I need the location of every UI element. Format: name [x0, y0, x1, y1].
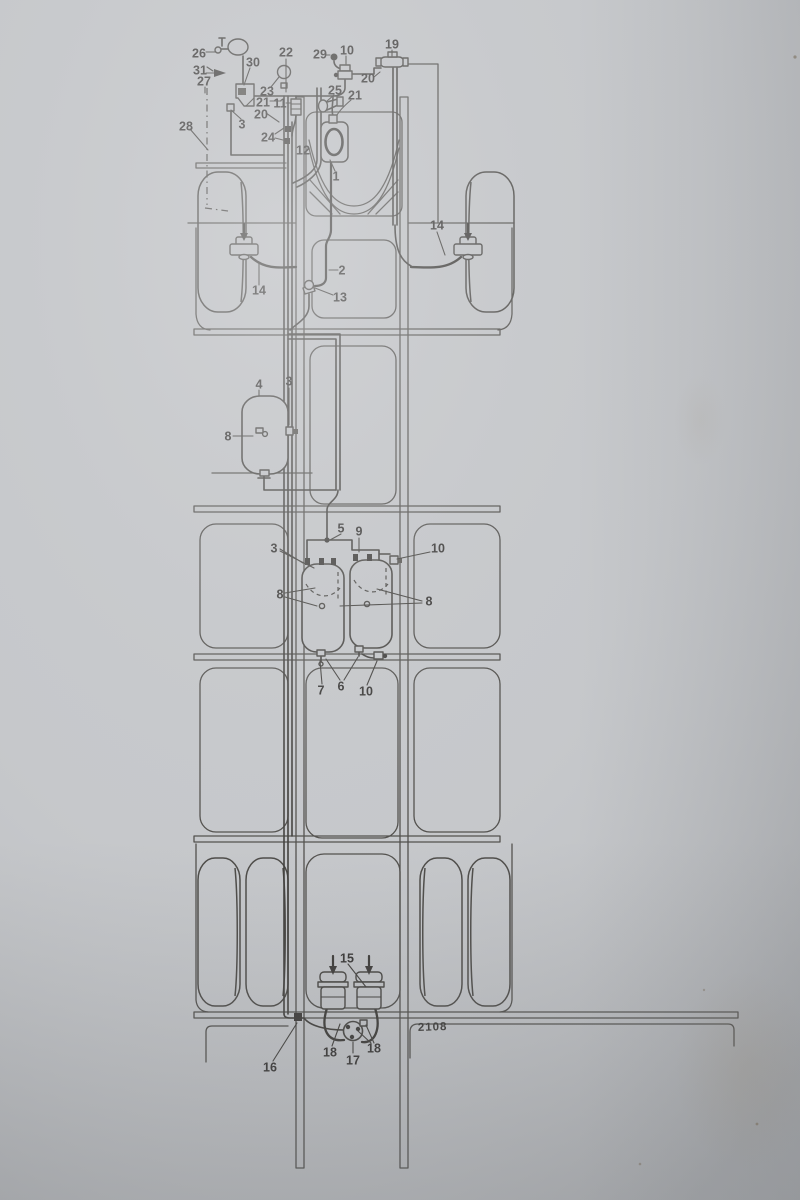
paper-speck: [793, 55, 796, 58]
chassis-air-system-diagram: 26 31 27 30 28 3 22 23 21 20 11 24 12 29…: [0, 0, 800, 1200]
paper-stain: [674, 374, 726, 466]
photo-effects: [0, 0, 800, 1200]
paper-speck: [639, 1163, 642, 1166]
paper-speck: [703, 989, 705, 991]
paper-speck: [756, 1123, 759, 1126]
photographed-diagram-page: 26 31 27 30 28 3 22 23 21 20 11 24 12 29…: [0, 0, 800, 1200]
